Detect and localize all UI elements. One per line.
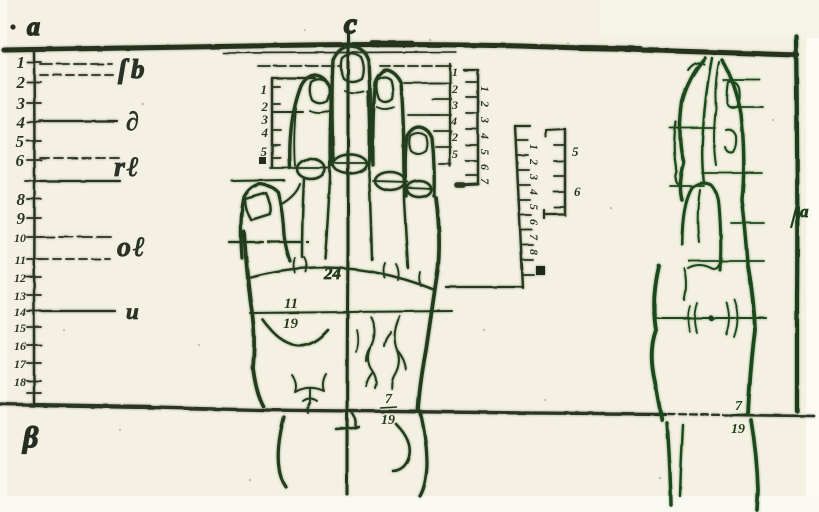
svg-text:6: 6 (527, 219, 541, 225)
svg-text:19: 19 (381, 413, 395, 428)
svg-text:c: c (344, 8, 357, 40)
svg-text:14: 14 (14, 305, 26, 319)
svg-text:∂: ∂ (126, 107, 139, 136)
svg-text:6: 6 (574, 184, 581, 199)
svg-text:5: 5 (452, 147, 458, 161)
svg-text:7: 7 (527, 234, 541, 241)
svg-text:5: 5 (261, 144, 268, 159)
svg-text:5: 5 (16, 132, 25, 151)
svg-text:4: 4 (527, 188, 541, 195)
svg-text:5: 5 (572, 144, 579, 159)
svg-text:4: 4 (16, 113, 26, 132)
svg-text:6: 6 (478, 164, 492, 170)
svg-text:2: 2 (478, 100, 492, 107)
svg-text:1: 1 (478, 86, 492, 92)
svg-text:3: 3 (451, 98, 458, 112)
svg-text:13: 13 (14, 289, 26, 303)
svg-text:9: 9 (17, 209, 26, 228)
svg-text:oℓ: oℓ (117, 232, 147, 263)
svg-text:15: 15 (14, 321, 26, 335)
svg-text:1: 1 (527, 144, 541, 150)
svg-text:10: 10 (14, 231, 26, 245)
svg-text:11: 11 (284, 296, 298, 312)
svg-text:2: 2 (451, 130, 458, 144)
svg-text:ſb: ſb (118, 54, 149, 84)
svg-text:5: 5 (527, 204, 541, 210)
svg-text:19: 19 (731, 422, 745, 437)
svg-text:7: 7 (385, 392, 393, 407)
svg-text:β: β (22, 421, 39, 454)
svg-text:2: 2 (527, 158, 541, 165)
svg-text:1: 1 (261, 82, 268, 97)
svg-text:19: 19 (283, 316, 299, 332)
svg-text:18: 18 (14, 375, 26, 389)
svg-text:11: 11 (15, 253, 26, 267)
svg-text:2: 2 (451, 82, 458, 96)
svg-text:16: 16 (14, 339, 26, 353)
svg-text:4: 4 (261, 125, 269, 140)
svg-text:rℓ: rℓ (114, 152, 141, 183)
svg-text:8: 8 (527, 249, 541, 255)
svg-text:7: 7 (478, 178, 492, 185)
svg-text:a: a (27, 12, 40, 41)
svg-text:6: 6 (16, 151, 25, 170)
svg-text:u: u (126, 299, 139, 324)
svg-text:12: 12 (14, 271, 26, 285)
svg-text:4: 4 (478, 132, 492, 139)
svg-text:1: 1 (17, 53, 26, 72)
svg-text:3: 3 (527, 173, 541, 180)
svg-text:5: 5 (478, 149, 492, 155)
svg-text:3: 3 (16, 94, 26, 113)
svg-text:17: 17 (14, 357, 27, 371)
svg-text:8: 8 (17, 190, 26, 209)
svg-text:7: 7 (735, 399, 743, 414)
svg-text:3: 3 (478, 116, 492, 123)
svg-text:4: 4 (450, 114, 457, 128)
svg-text:2: 2 (16, 73, 26, 92)
svg-text:24: 24 (323, 264, 341, 283)
svg-text:a: a (800, 202, 809, 221)
svg-text:1: 1 (452, 65, 458, 79)
